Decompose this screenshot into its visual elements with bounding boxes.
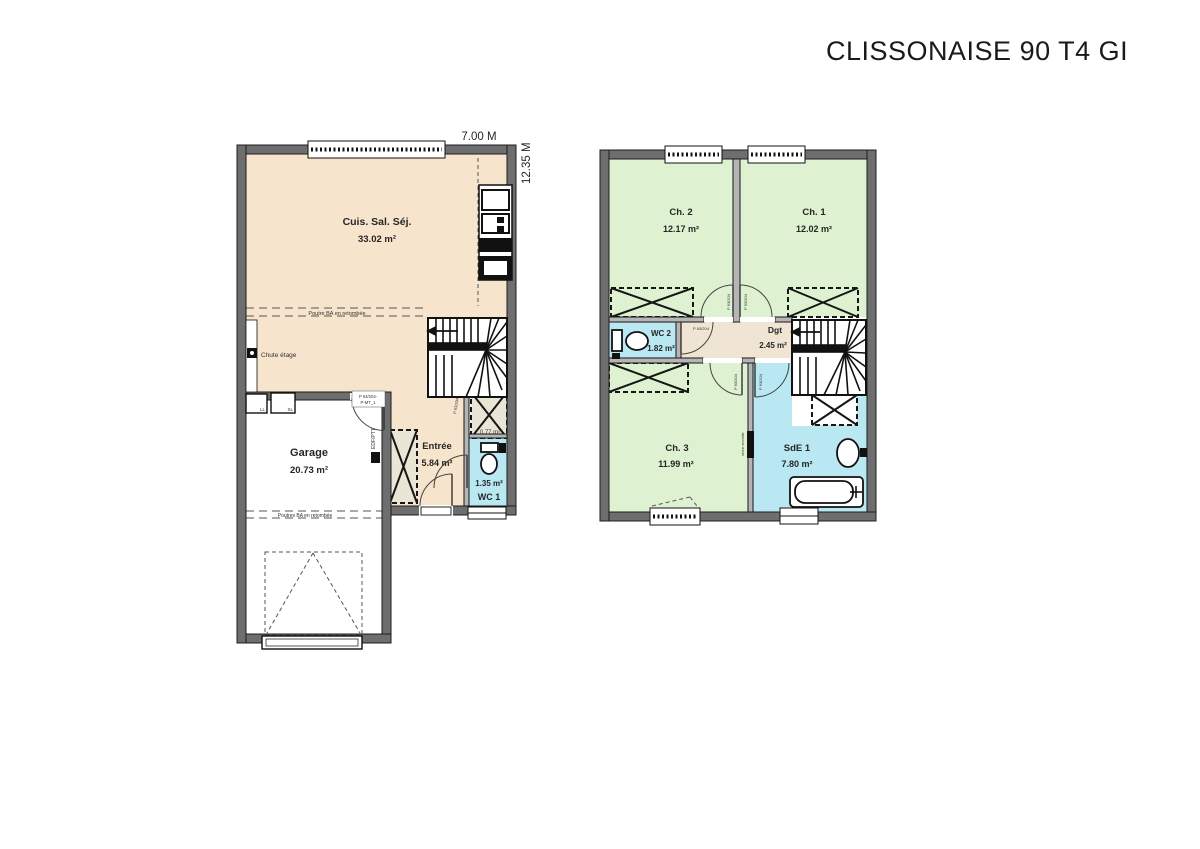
closet-sde [812,395,857,425]
window-living [308,141,445,158]
room-area-sde: 7.80 m² [781,459,812,469]
floor-plan-sheet: CLISSONAISE 90 T4 GI [0,0,1200,849]
towel-radiator-icon: sèche serviette [741,431,754,458]
room-area-ch3: 11.99 m² [658,459,694,469]
room-area-ch2: 12.17 m² [663,224,699,234]
bathtub-icon [790,477,863,507]
window-ch2 [665,146,722,163]
room-label-ch2: Ch. 2 [669,207,692,218]
label-sl: SL [287,407,293,412]
first-floor-plan: sèche serviette P 63/204 P 63/204 P 63/2… [600,146,876,525]
door-label: P 63/204 [726,293,731,310]
door-label: P 63/204 [693,326,710,331]
chute-label: Chute étage [261,352,297,359]
window-wc1 [468,507,506,519]
room-label-ch1: Ch. 1 [802,207,826,218]
beam-label: Poutres BA en retombée [278,513,333,519]
room-label-dgt: Dgt [768,325,782,335]
kitchen-unit-icon [479,185,512,280]
stairs-ground [426,318,507,397]
room-label-sde: SdE 1 [784,443,811,454]
room-label-wc2: WC 2 [651,329,672,338]
room-ch1 [740,159,867,317]
room-label-garage: Garage [290,447,328,459]
room-label-entree: Entrée [422,441,452,452]
door-label: P-MT_1 [361,400,377,405]
room-label-wc1: WC 1 [478,492,501,502]
room-area-ch1: 12.02 m² [796,224,832,234]
window-sde [780,508,818,524]
door-label: P 63/204 [758,373,763,390]
room-area-wc2: 1.82 m² [647,344,675,353]
sde-recess [792,395,812,426]
closet-entree [390,430,417,503]
room-label-ch3: Ch. 3 [665,443,688,454]
appliance-boxes: LL SL [246,393,295,413]
door-label: P 63/204 [733,373,738,390]
chute-etage-marker [246,320,257,392]
edf-label: EDF/PTT [371,428,377,449]
room-area-wc1: 1.35 m² [475,479,503,488]
label-ll: LL [260,407,266,412]
dimension-width: 7.00 M [461,131,496,143]
dimension-height: 12.35 M [521,142,533,184]
plans-canvas: LL SL P 63/204- P-MT_1 [0,0,1200,849]
room-label-living: Cuis. Sal. Séj. [343,216,412,228]
window-ch1 [748,146,805,163]
room-area-garage: 20.73 m² [290,465,328,476]
door-label: P 63/204- [359,394,378,399]
ground-floor-plan: LL SL P 63/204- P-MT_1 [237,131,533,649]
room-area-entree: 5.84 m² [421,458,452,468]
towel-label: sèche serviette [741,432,745,456]
beam-label: Poutre BA en retombée [308,311,365,317]
room-area-living: 33.02 m² [358,234,396,245]
stairs-first [790,320,866,395]
closet-area-label: 0.77 m² [480,430,500,436]
door-label: P 63/204 [743,293,748,310]
room-area-dgt: 2.45 m² [759,341,787,350]
